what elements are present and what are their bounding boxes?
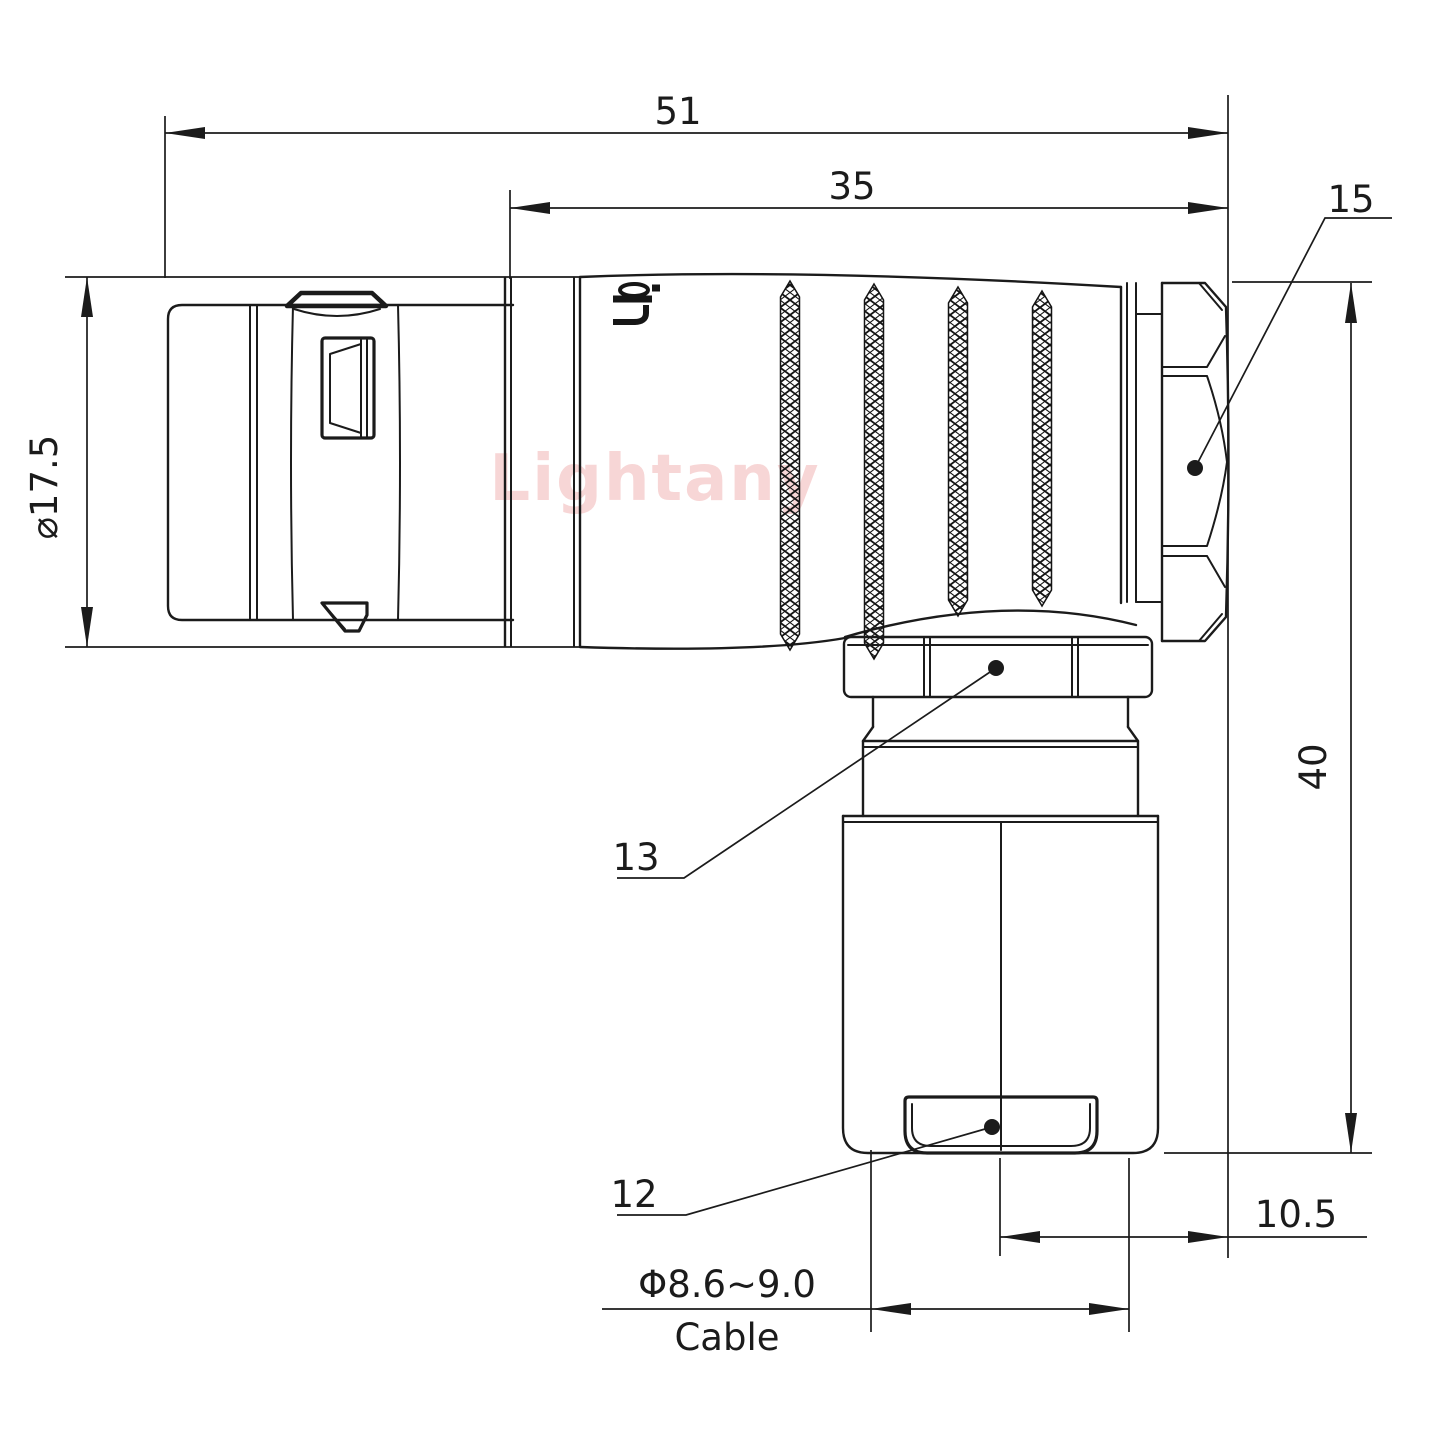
dim-elbow-height: 40 [1164, 282, 1372, 1153]
leader-dot-12 [984, 1119, 1000, 1135]
lightany-logo-mark [613, 284, 660, 322]
latch-wedge [322, 603, 367, 631]
dim-17-5-text: ⌀17.5 [23, 435, 66, 540]
dim-overall-length: 51 [165, 90, 1228, 1258]
cable-sleeve [843, 816, 1158, 1153]
front-shell [168, 293, 513, 631]
dim-35-text: 35 [828, 165, 875, 208]
watermark-text: Lightany [489, 442, 820, 516]
dim-nut-offset: 10.5 [1000, 1158, 1367, 1256]
leader-part-15: 15 [1187, 178, 1392, 476]
knurl-bands [781, 281, 1052, 659]
leader-dot-13 [988, 660, 1004, 676]
leader-part-13: 13 [612, 660, 1004, 879]
dim-boot-length: 35 [510, 165, 1228, 279]
part-label-13: 13 [612, 836, 659, 879]
dim-40-text: 40 [1292, 743, 1335, 790]
dim-10-5-text: 10.5 [1255, 1193, 1337, 1236]
back-hex-nut [1127, 283, 1229, 641]
dim-51-text: 51 [654, 90, 701, 133]
dim-cable-diameter-text: Φ8.6~9.0 [638, 1263, 816, 1306]
part-label-15: 15 [1327, 178, 1374, 221]
part-label-12: 12 [610, 1173, 657, 1216]
dim-cable: Φ8.6~9.0 Cable [602, 1150, 1129, 1359]
leader-dot-15 [1187, 460, 1203, 476]
leader-part-12: 12 [610, 1119, 1000, 1216]
technical-drawing: Lightany [0, 0, 1440, 1440]
drawing-canvas: Lightany [0, 0, 1440, 1440]
elbow-neck [863, 697, 1138, 816]
key-slot [287, 293, 386, 316]
latch-window [322, 338, 374, 438]
dim-cable-label-text: Cable [674, 1316, 779, 1359]
